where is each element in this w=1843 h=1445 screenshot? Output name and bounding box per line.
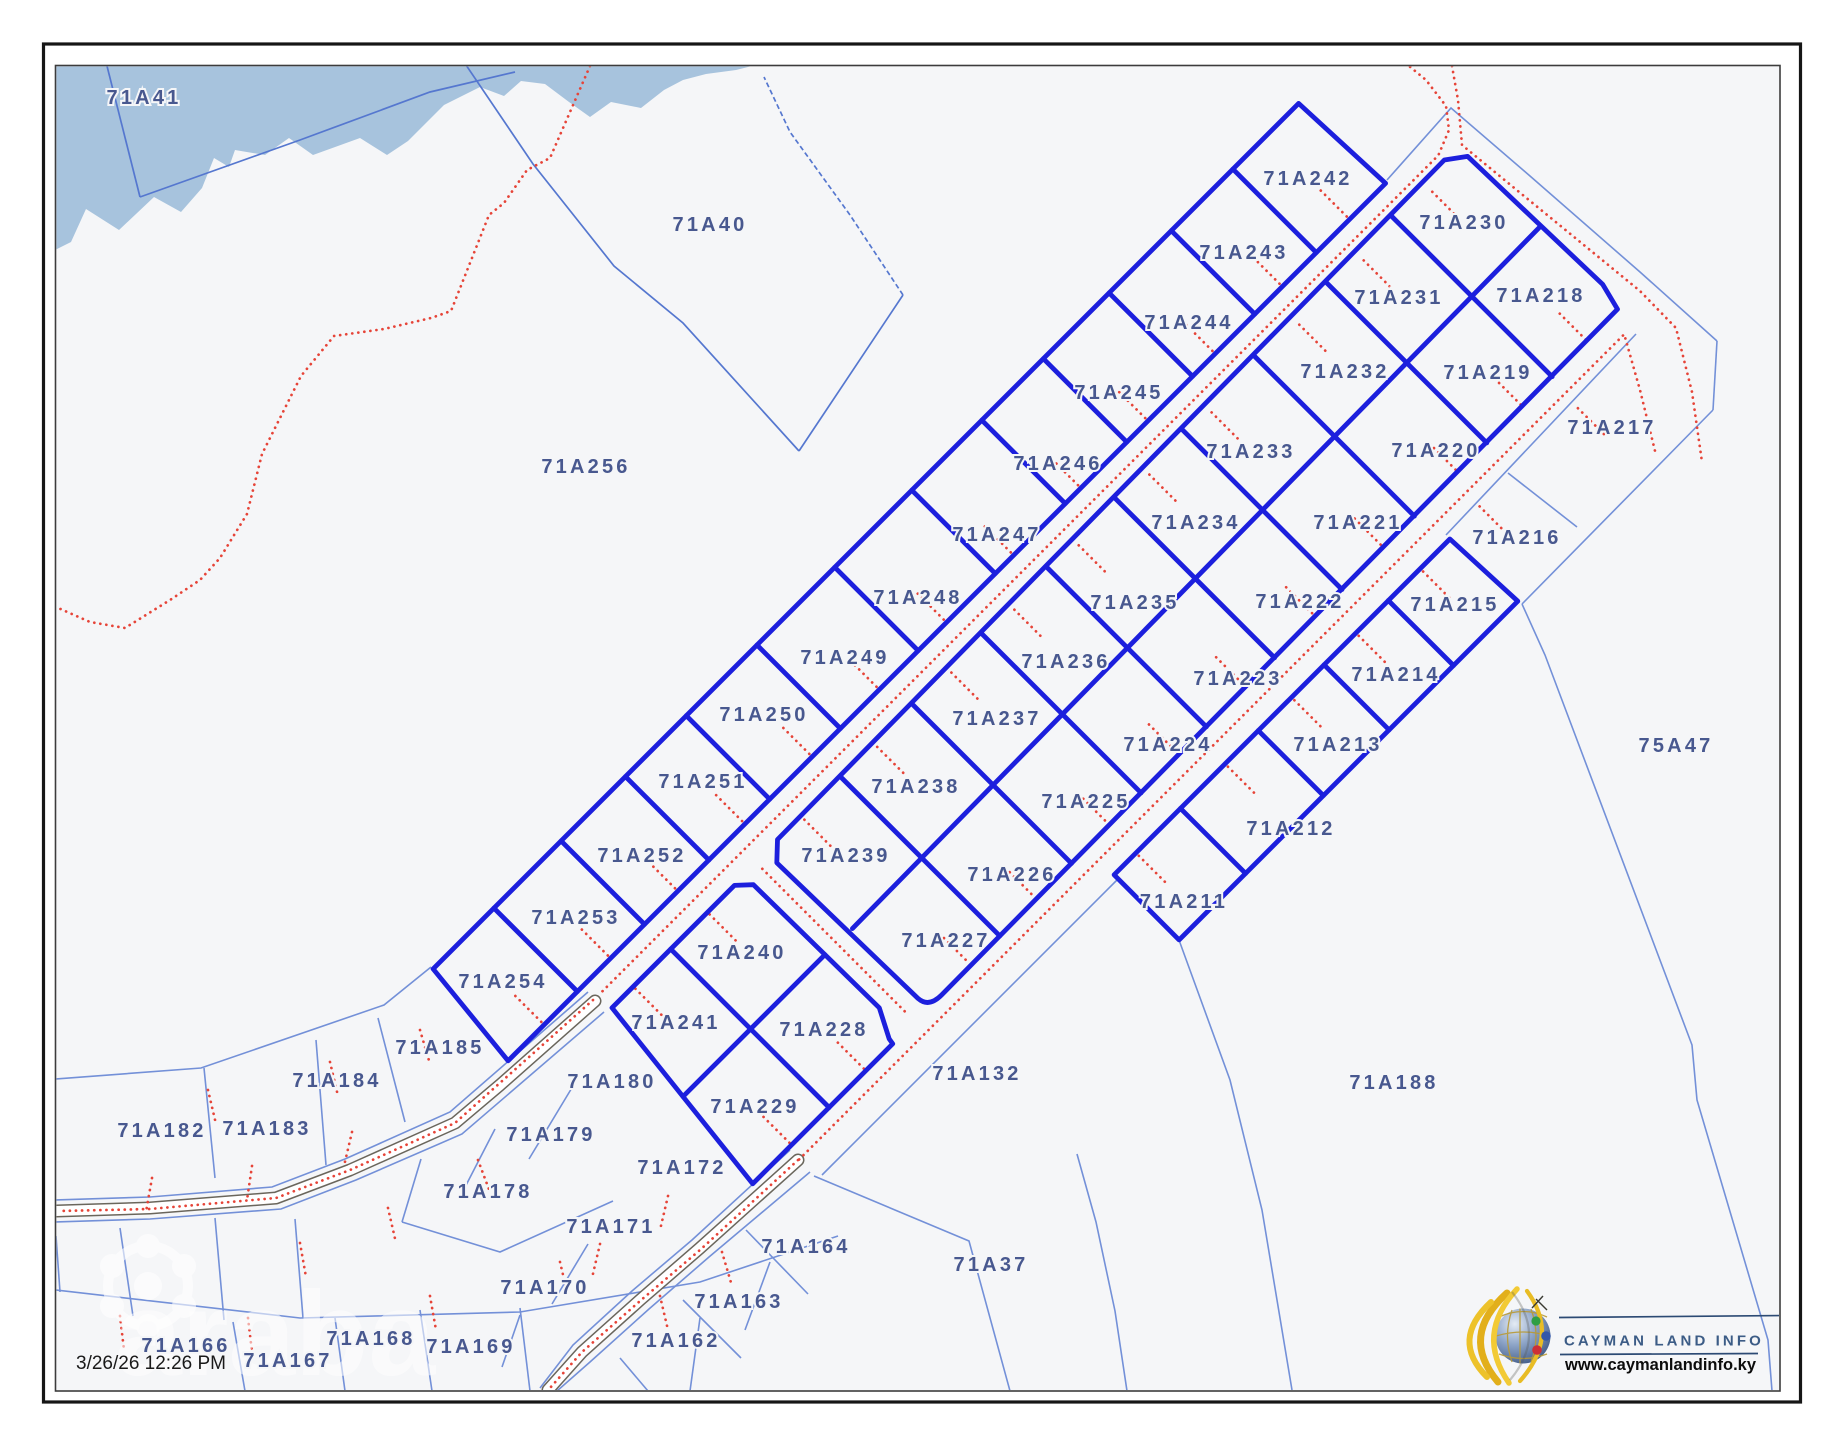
svg-text:71A162: 71A162 <box>631 1330 720 1352</box>
svg-text:71A218: 71A218 <box>1496 285 1585 307</box>
svg-text:71A185: 71A185 <box>395 1037 484 1059</box>
svg-text:www.caymanlandinfo.ky: www.caymanlandinfo.ky <box>1564 1356 1757 1374</box>
svg-text:71A183: 71A183 <box>222 1118 311 1140</box>
svg-text:71A233: 71A233 <box>1206 441 1295 463</box>
svg-text:71A179: 71A179 <box>506 1124 595 1146</box>
svg-text:71A221: 71A221 <box>1313 512 1402 534</box>
svg-text:71A248: 71A248 <box>873 587 962 609</box>
svg-text:71A41: 71A41 <box>107 87 182 109</box>
svg-text:71A132: 71A132 <box>932 1063 1021 1085</box>
svg-text:71A239: 71A239 <box>801 845 890 867</box>
svg-text:71A213: 71A213 <box>1293 734 1382 756</box>
svg-text:71A215: 71A215 <box>1410 594 1499 616</box>
svg-text:71A212: 71A212 <box>1246 818 1335 840</box>
svg-text:71A163: 71A163 <box>694 1291 783 1313</box>
svg-text:71A232: 71A232 <box>1300 361 1389 383</box>
svg-text:71A168: 71A168 <box>326 1328 415 1350</box>
svg-text:71A216: 71A216 <box>1472 527 1561 549</box>
svg-text:71A254: 71A254 <box>458 971 547 993</box>
svg-text:71A170: 71A170 <box>500 1277 589 1299</box>
svg-text:71A211: 71A211 <box>1140 891 1228 913</box>
svg-text:71A178: 71A178 <box>443 1181 532 1203</box>
svg-text:71A240: 71A240 <box>697 942 786 964</box>
svg-text:71A169: 71A169 <box>426 1336 515 1358</box>
svg-text:71A235: 71A235 <box>1090 592 1179 614</box>
svg-text:71A243: 71A243 <box>1199 242 1288 264</box>
svg-text:71A250: 71A250 <box>719 704 808 726</box>
svg-text:71A223: 71A223 <box>1193 668 1282 690</box>
svg-text:71A234: 71A234 <box>1151 512 1240 534</box>
svg-text:71A247: 71A247 <box>952 524 1041 546</box>
svg-text:71A237: 71A237 <box>952 708 1041 730</box>
svg-text:71A242: 71A242 <box>1263 168 1352 190</box>
svg-text:71A251: 71A251 <box>658 771 747 793</box>
svg-text:71A180: 71A180 <box>567 1071 656 1093</box>
svg-text:71A184: 71A184 <box>292 1070 381 1092</box>
svg-text:71A37: 71A37 <box>954 1254 1029 1276</box>
svg-text:71A214: 71A214 <box>1351 664 1440 686</box>
svg-text:71A246: 71A246 <box>1013 453 1102 475</box>
svg-text:71A236: 71A236 <box>1021 651 1110 673</box>
svg-text:71A252: 71A252 <box>597 845 686 867</box>
svg-text:71A40: 71A40 <box>673 214 748 236</box>
svg-text:71A256: 71A256 <box>541 456 630 478</box>
svg-text:71A182: 71A182 <box>117 1120 206 1142</box>
svg-text:71A244: 71A244 <box>1144 312 1233 334</box>
svg-text:71A220: 71A220 <box>1391 440 1480 462</box>
svg-text:71A217: 71A217 <box>1567 417 1656 439</box>
svg-text:71A224: 71A224 <box>1123 734 1212 756</box>
svg-text:75A47: 75A47 <box>1639 735 1714 757</box>
svg-text:71A164: 71A164 <box>761 1236 850 1258</box>
svg-text:71A225: 71A225 <box>1041 791 1130 813</box>
svg-text:71A222: 71A222 <box>1255 591 1344 613</box>
svg-text:71A249: 71A249 <box>800 647 889 669</box>
svg-text:71A227: 71A227 <box>901 930 990 952</box>
svg-text:71A230: 71A230 <box>1419 212 1508 234</box>
svg-text:71A245: 71A245 <box>1074 382 1163 404</box>
svg-text:71A231: 71A231 <box>1354 287 1443 309</box>
svg-text:3/26/26 12:26 PM: 3/26/26 12:26 PM <box>76 1353 226 1374</box>
svg-text:71A228: 71A228 <box>779 1019 868 1041</box>
svg-text:71A226: 71A226 <box>967 864 1056 886</box>
svg-text:71A253: 71A253 <box>531 907 620 929</box>
svg-text:71A167: 71A167 <box>243 1350 332 1372</box>
svg-text:71A188: 71A188 <box>1349 1072 1438 1094</box>
svg-text:71A219: 71A219 <box>1443 362 1532 384</box>
svg-text:71A229: 71A229 <box>710 1096 799 1118</box>
svg-text:71A238: 71A238 <box>871 776 960 798</box>
svg-text:CAYMAN LAND INFO: CAYMAN LAND INFO <box>1564 1333 1764 1350</box>
svg-text:71A171: 71A171 <box>566 1216 655 1238</box>
svg-text:71A172: 71A172 <box>637 1157 726 1179</box>
svg-text:71A241: 71A241 <box>631 1012 720 1034</box>
